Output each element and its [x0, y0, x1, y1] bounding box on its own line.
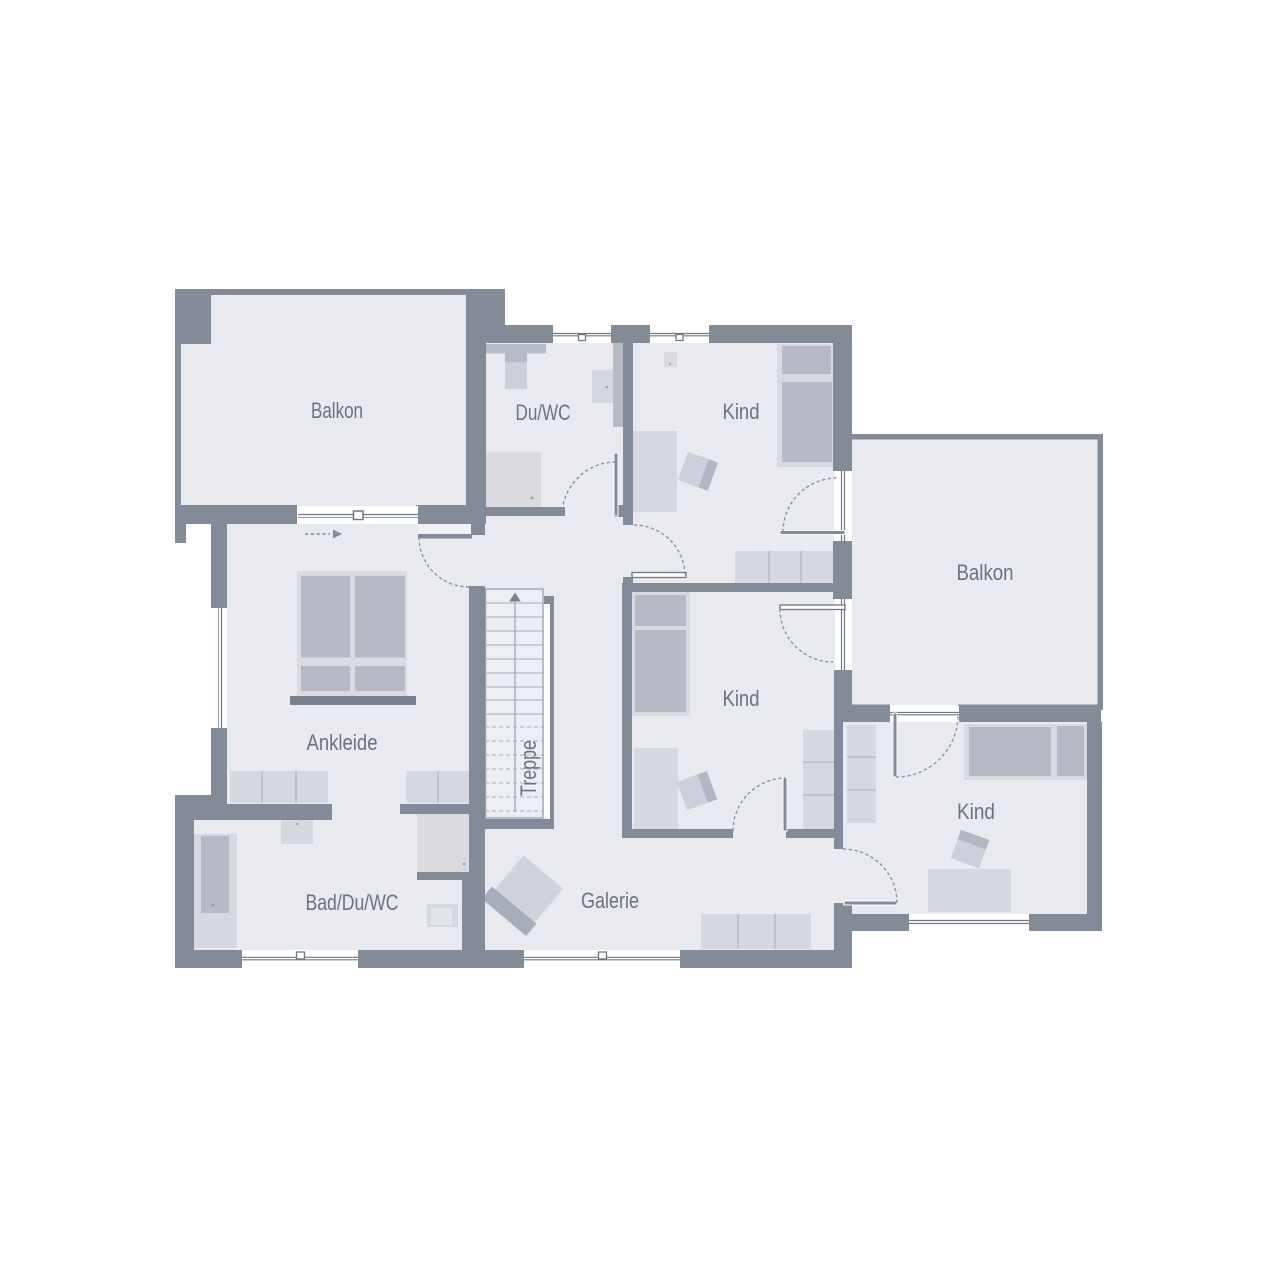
svg-text:Kind: Kind — [723, 399, 760, 424]
svg-text:Treppe: Treppe — [516, 740, 541, 796]
svg-text:Bad/Du/WC: Bad/Du/WC — [306, 890, 399, 915]
svg-text:Balkon: Balkon — [311, 398, 363, 423]
svg-text:Kind: Kind — [957, 799, 995, 824]
svg-text:Du/WC: Du/WC — [516, 400, 571, 425]
svg-text:Galerie: Galerie — [581, 888, 639, 913]
svg-text:Ankleide: Ankleide — [307, 730, 378, 755]
svg-text:Kind: Kind — [723, 686, 760, 711]
svg-text:Balkon: Balkon — [957, 560, 1014, 585]
